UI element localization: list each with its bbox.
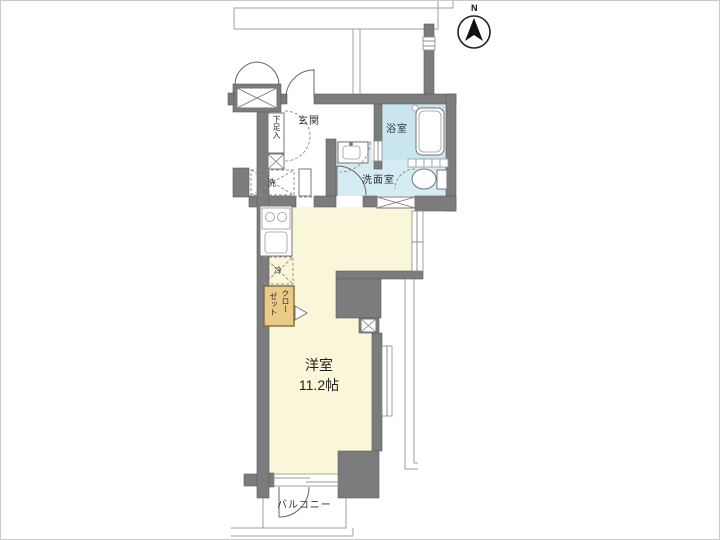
bottom-pillar bbox=[338, 451, 379, 498]
hall-south-wall bbox=[249, 196, 296, 207]
balcony-sliding-door bbox=[274, 474, 338, 486]
elevator-stub bbox=[228, 93, 234, 105]
main-room-size: 11.2帖 bbox=[279, 375, 359, 395]
mid-wall-band bbox=[336, 271, 423, 279]
bathroom-door bbox=[374, 141, 382, 161]
washroom-south-wall-c bbox=[415, 196, 456, 211]
compass bbox=[458, 16, 490, 48]
entrance-door bbox=[286, 69, 314, 98]
fridge-label: 冷 bbox=[274, 265, 282, 276]
closet-label-left: ゼット bbox=[268, 292, 279, 316]
corridor-inner-line bbox=[234, 1, 438, 29]
wall-storage-box bbox=[377, 197, 415, 208]
bathtub bbox=[412, 105, 444, 155]
corridor-fence-line bbox=[353, 29, 360, 94]
compass-north-label: N bbox=[471, 3, 478, 13]
left-wall-stub bbox=[244, 474, 257, 486]
corridor-window bbox=[423, 37, 435, 50]
bathroom-wall-lower bbox=[374, 161, 382, 169]
hall-door-leaf bbox=[299, 169, 311, 196]
neighbor-outline-right bbox=[405, 279, 418, 469]
shoe-cabinet-label: 下足入 bbox=[271, 115, 282, 139]
washer-label: 洗 bbox=[267, 176, 276, 189]
main-room-name: 洋室 bbox=[279, 355, 359, 375]
washroom-south-wall-b bbox=[363, 196, 377, 207]
right-wall-upper bbox=[446, 94, 456, 211]
genkan-washroom-wall bbox=[326, 139, 336, 196]
pipe-space-box bbox=[268, 154, 284, 169]
upper-right-window bbox=[412, 211, 423, 271]
washroom-label: 洗面室 bbox=[362, 171, 395, 186]
bathroom-wall-upper bbox=[374, 104, 382, 141]
lower-neighbor-outline bbox=[231, 528, 353, 536]
entrance-label: 玄関 bbox=[298, 112, 320, 127]
top-wall-right bbox=[314, 94, 456, 104]
lower-right-window bbox=[382, 346, 392, 416]
bath-step-tiles bbox=[408, 159, 448, 167]
elevator bbox=[228, 62, 281, 112]
washer-side-wall bbox=[233, 168, 249, 197]
elevator-door-arc-left bbox=[235, 62, 258, 84]
mid-pillar bbox=[336, 279, 381, 318]
right-wall-lower bbox=[372, 333, 382, 451]
floor-plan-drawing bbox=[1, 1, 719, 539]
kitchen-counter bbox=[260, 206, 292, 256]
corridor-outline bbox=[234, 1, 453, 29]
corridor-wall-a bbox=[424, 24, 434, 38]
elevator-door-arc-right bbox=[256, 62, 279, 84]
bathroom-label: 浴室 bbox=[386, 120, 408, 135]
stove-burner-left bbox=[266, 213, 275, 222]
washroom-south-wall-a bbox=[314, 196, 336, 207]
floor-plan-canvas: 玄関 下足入 浴室 洗面室 洗 冷 クロー ゼット 洋室 11.2帖 バルコニー… bbox=[0, 0, 720, 540]
pillar-ps-box bbox=[361, 319, 376, 332]
kitchen-sink bbox=[265, 232, 287, 253]
main-room-label: 洋室 11.2帖 bbox=[279, 355, 359, 396]
stove-burner-right bbox=[278, 213, 287, 222]
closet-label-right: クロー bbox=[280, 289, 291, 313]
corridor-wall-b bbox=[424, 49, 434, 94]
balcony-label: バルコニー bbox=[277, 496, 332, 511]
